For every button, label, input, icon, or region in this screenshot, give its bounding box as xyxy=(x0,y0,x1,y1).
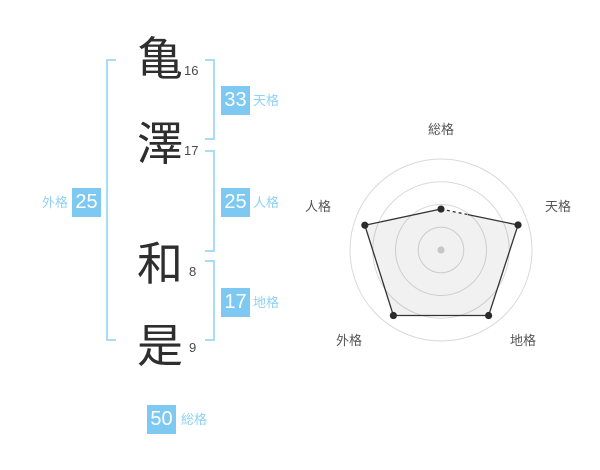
bracket-jinkaku xyxy=(205,150,215,252)
radar-axis-label: 人格 xyxy=(305,199,331,214)
radar-vertex-dot xyxy=(437,205,444,212)
radar-vertex-dot xyxy=(514,221,521,228)
radar-chart: 総格天格地格外格人格 xyxy=(300,108,590,372)
gaikaku-label: 外格 xyxy=(42,196,68,209)
soukaku-value-box: 50 xyxy=(147,405,176,434)
radar-vertex-dot xyxy=(485,312,492,319)
surname-char-1-strokes: 16 xyxy=(184,64,198,77)
seimei-handan-panel: 亀 16 澤 17 和 8 是 9 外格 25 33 天格 25 人格 17 地… xyxy=(0,0,600,470)
soukaku-label: 総格 xyxy=(181,413,207,426)
surname-char-1: 亀 xyxy=(134,36,186,82)
chikaku-value-box: 17 xyxy=(221,288,250,317)
bracket-tenkaku xyxy=(205,59,215,140)
given-char-1-strokes: 8 xyxy=(189,265,196,278)
radar-axis-label: 総格 xyxy=(428,122,454,137)
tenkaku-label: 天格 xyxy=(253,94,279,107)
bracket-chikaku xyxy=(205,260,215,341)
chikaku-label: 地格 xyxy=(253,296,279,309)
given-char-2: 是 xyxy=(134,323,186,369)
jinkaku-value-box: 25 xyxy=(221,188,250,217)
radar-vertex-dot xyxy=(390,312,397,319)
tenkaku-value-box: 33 xyxy=(221,86,250,115)
radar-vertex-dot xyxy=(361,222,368,229)
given-char-1: 和 xyxy=(134,241,186,287)
radar-axis-label: 外格 xyxy=(336,333,362,348)
gaikaku-value-box: 25 xyxy=(72,188,101,217)
radar-axis-label: 地格 xyxy=(510,333,536,348)
bracket-gaikaku xyxy=(106,59,116,341)
radar-axis-label: 天格 xyxy=(545,199,571,214)
surname-char-2-strokes: 17 xyxy=(184,144,198,157)
given-char-2-strokes: 9 xyxy=(189,341,196,354)
radar-center-dot xyxy=(437,246,444,253)
surname-char-2: 澤 xyxy=(134,121,186,167)
jinkaku-label: 人格 xyxy=(253,196,279,209)
